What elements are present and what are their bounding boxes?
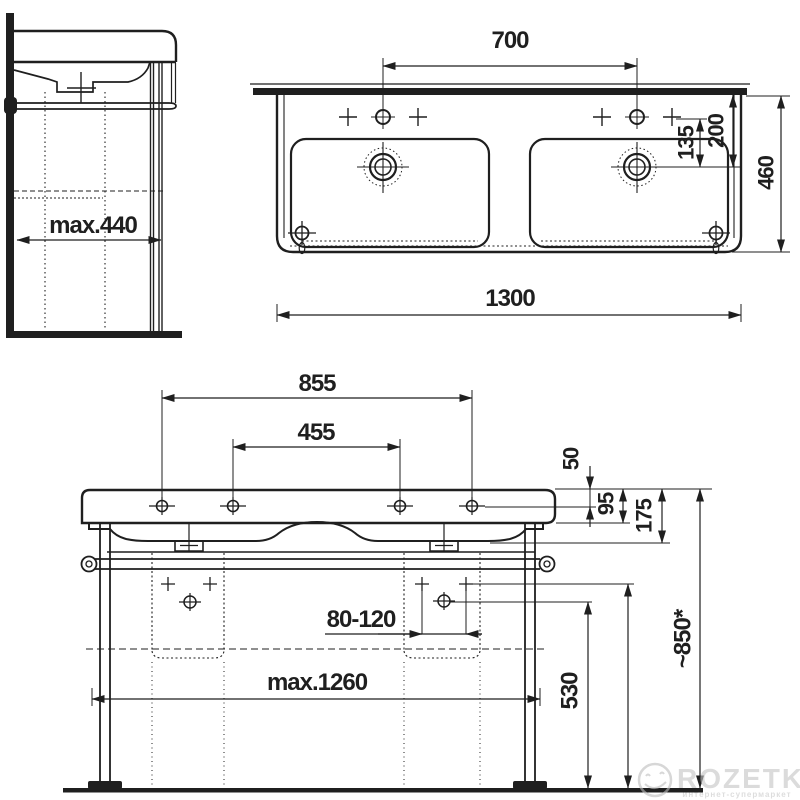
drain-cross-side: [67, 72, 96, 103]
dim-label-rim-height: 95: [594, 492, 619, 515]
floor-line-front: [63, 788, 703, 793]
basin-underside: [89, 522, 543, 541]
leg-bracket-side: [172, 63, 176, 103]
dim-label-hole-to-drain: 135: [674, 125, 699, 159]
right-foot: [513, 781, 547, 789]
dim-label-body-height: 175: [632, 498, 657, 532]
wall-section: [6, 13, 14, 338]
dim-label-mounting-height: ~850*: [670, 608, 697, 668]
left-drain: [357, 142, 409, 193]
dim-label-drain-range: 80-120: [327, 606, 396, 633]
dim-label-inner-holes: 455: [297, 419, 335, 446]
drain-pipes-hidden: [45, 92, 105, 330]
dim-label-faucet-spacing: 700: [491, 27, 529, 54]
top-view: 700 135 200 460 1300: [250, 27, 790, 322]
mount-cross-right-top: [702, 221, 730, 254]
dim-label-top-to-hole: 50: [559, 447, 584, 470]
right-leg: [525, 523, 535, 782]
mount-marks-left: [161, 577, 217, 611]
faucet-hole-right: [593, 105, 681, 129]
floor-line-side: [6, 331, 182, 338]
wall-bracket: [4, 97, 17, 114]
dim-label-max-depth: max.440: [49, 212, 137, 239]
dim-label-width: 1300: [485, 285, 535, 312]
dim-label-max-leg-spacing: max.1260: [267, 669, 368, 696]
towel-rail-side: [14, 103, 176, 109]
rozetka-tagline-text: интернет-супермаркет: [682, 790, 791, 799]
left-leg: [100, 523, 110, 782]
mount-marks-right: [415, 577, 473, 610]
ext-lines-700: [383, 58, 637, 107]
side-view: max.440: [4, 13, 182, 338]
bracket-right: [430, 524, 458, 551]
left-foot: [88, 781, 122, 789]
dim-label-depth: 460: [754, 155, 779, 189]
washbasin-technical-drawing: max.440: [0, 0, 800, 800]
back-rim-bar: [253, 88, 747, 95]
dim-label-outer-holes: 855: [298, 370, 336, 397]
dim-label-trap-height: 530: [557, 672, 584, 710]
dim-label-edge-to-drain: 200: [704, 113, 729, 147]
faucet-hole-crosses-front: [149, 497, 485, 515]
drawing-canvas: max.440: [0, 0, 800, 800]
bracket-left: [175, 524, 203, 551]
reference-lines-right: [450, 489, 712, 602]
washbasin-side-profile: [14, 31, 176, 62]
watermark: ROZETKA интернет-супермаркет: [639, 763, 800, 799]
faucet-hole-left: [339, 105, 427, 129]
front-view: 855 455: [63, 370, 712, 793]
